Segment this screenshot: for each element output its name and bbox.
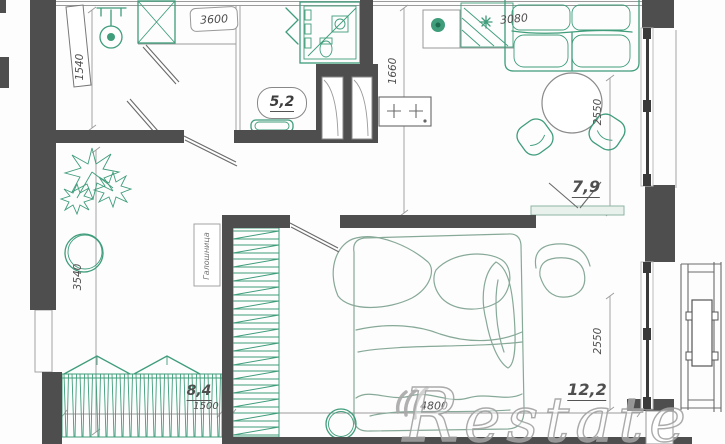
balcony-door-panel: [646, 411, 673, 444]
living-window: [641, 28, 653, 186]
dimension-living-depth: 2550: [593, 99, 604, 126]
dimension-hallway-depth: 3540: [73, 264, 84, 291]
pouf-icon: [326, 409, 356, 439]
room-label-living-kitchen: 7,9: [572, 179, 600, 195]
dimension-bedroom-depth: 2550: [593, 328, 604, 355]
room-label-bathroom: 5,2: [257, 87, 307, 119]
room-label-bedroom: 12,2: [567, 382, 606, 398]
room-label-hallway: 8,4: [187, 384, 212, 398]
bedroom-door-leaf: [290, 223, 339, 252]
dimension-kitchen-width: 3080: [500, 12, 529, 25]
room-label-bedroom-value: 12,2: [567, 380, 606, 401]
shower-cabin-icon: [286, 2, 360, 63]
armchair-icon: [483, 244, 590, 368]
bedroom-window: [641, 262, 653, 409]
room-label-hallway-value: 8,4: [187, 383, 212, 401]
dimension-bath-kitchen-depth: 1660: [388, 58, 399, 85]
floor-plan: 3600 1540 5,2 1660 3080 2550 7,9 3540 Га…: [0, 0, 725, 444]
balcony-ladder-icon: [681, 262, 721, 412]
room-label-living-kitchen-value: 7,9: [572, 177, 600, 198]
dimension-wardrobe-width: 1500: [193, 402, 218, 412]
kitchen-sink-icon: [423, 10, 460, 48]
bedroom-wardrobe-icon: [233, 228, 279, 437]
mirror-icon: [65, 234, 103, 272]
dimension-bedroom-width: 4800: [420, 401, 448, 412]
dimension-entry-depth: 1540: [75, 54, 86, 81]
shoe-cabinet-label: Галошница: [203, 232, 211, 279]
dimension-closet-width-value: 3600: [200, 12, 229, 26]
bathroom-door-leaf: [184, 136, 237, 166]
stove-icon: [379, 97, 431, 126]
entry-light-fixture-icon: [97, 8, 126, 48]
entry-closet-icon: [127, 1, 179, 133]
dimension-closet-width: 3600: [189, 6, 238, 32]
room-label-bathroom-value: 5,2: [270, 94, 295, 112]
floor-plan-drawing: [0, 0, 725, 444]
